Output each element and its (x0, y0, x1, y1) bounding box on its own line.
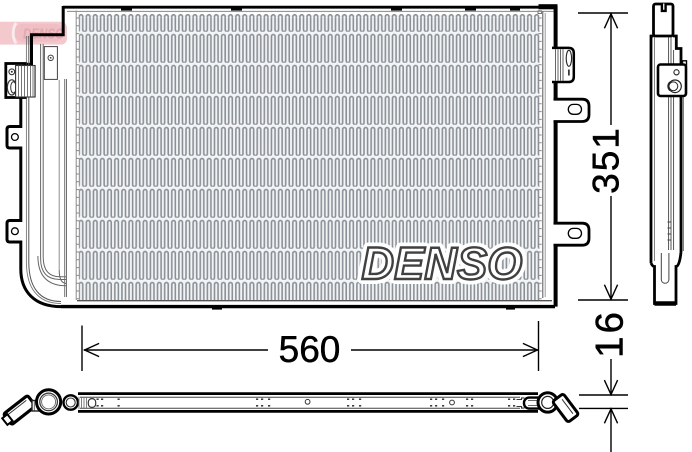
svg-text:16: 16 (589, 309, 632, 358)
svg-text:351: 351 (586, 126, 627, 194)
svg-text:DENSO: DENSO (361, 238, 522, 289)
svg-text:560: 560 (279, 329, 341, 370)
